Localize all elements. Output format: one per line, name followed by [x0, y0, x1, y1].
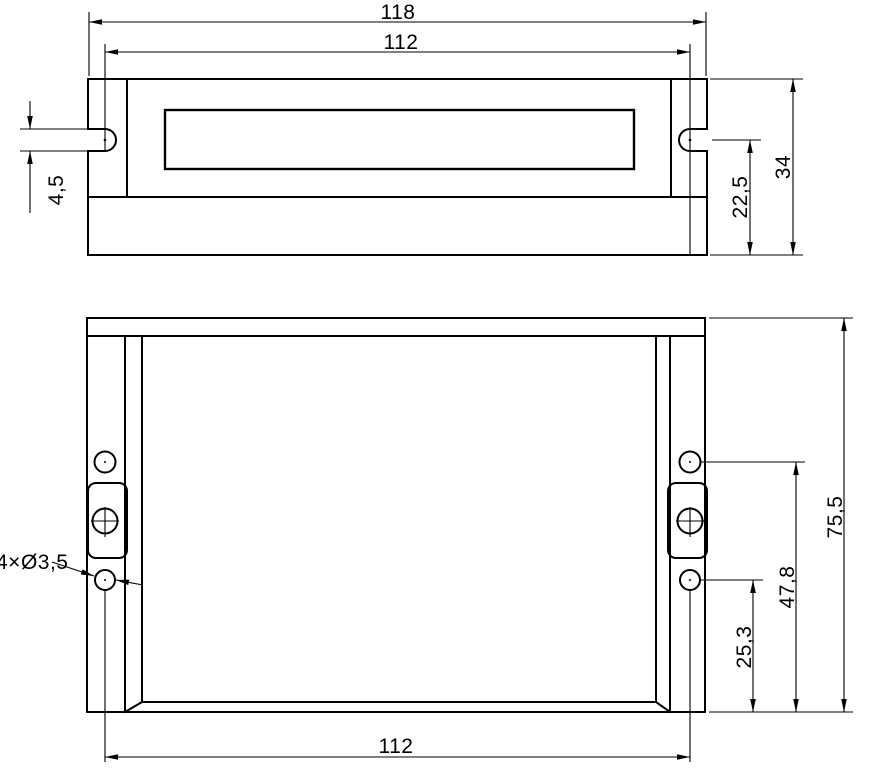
dim-label-overall-width: 118 [381, 1, 416, 24]
dim-label-slot-span: 112 [384, 31, 419, 54]
dim-label-slot-height: 22,5 [729, 176, 752, 219]
terminal-recess [165, 110, 634, 169]
hole-callout-label: 4×Ø3,5 [0, 551, 68, 574]
front-body-outline [88, 79, 707, 255]
dim-label-slot-width: 4,5 [45, 175, 68, 206]
left-mounting-slot [88, 129, 116, 151]
hole-top-right-center [689, 461, 691, 463]
screw-right [676, 507, 704, 537]
plan-view: 4×Ø3,5 75,5 47,8 25,3 112 [0, 318, 853, 762]
technical-drawing-page: 118 112 4,5 22,5 34 [0, 0, 872, 780]
ext-lines-112-top [105, 44, 690, 255]
hole-callout-leader-right [116, 580, 143, 585]
ext-lines-4-5 [20, 129, 88, 151]
plan-outline [87, 318, 705, 712]
dim-label-hole-span: 112 [379, 735, 414, 758]
hole-bottom-right-center [689, 579, 691, 581]
front-view: 118 112 4,5 22,5 34 [20, 1, 803, 255]
screw-left [91, 507, 119, 537]
dim-label-overall-depth: 75,5 [824, 496, 847, 539]
dimension-drawing-canvas: 118 112 4,5 22,5 34 [0, 0, 872, 780]
hole-bottom-left-center [104, 579, 106, 581]
dim-label-upper-hole: 47,8 [776, 566, 799, 609]
dim-label-overall-height: 34 [772, 155, 795, 179]
dim-label-lower-hole: 25,3 [733, 626, 756, 669]
right-mounting-slot [679, 129, 707, 151]
hole-top-left-center [104, 461, 106, 463]
